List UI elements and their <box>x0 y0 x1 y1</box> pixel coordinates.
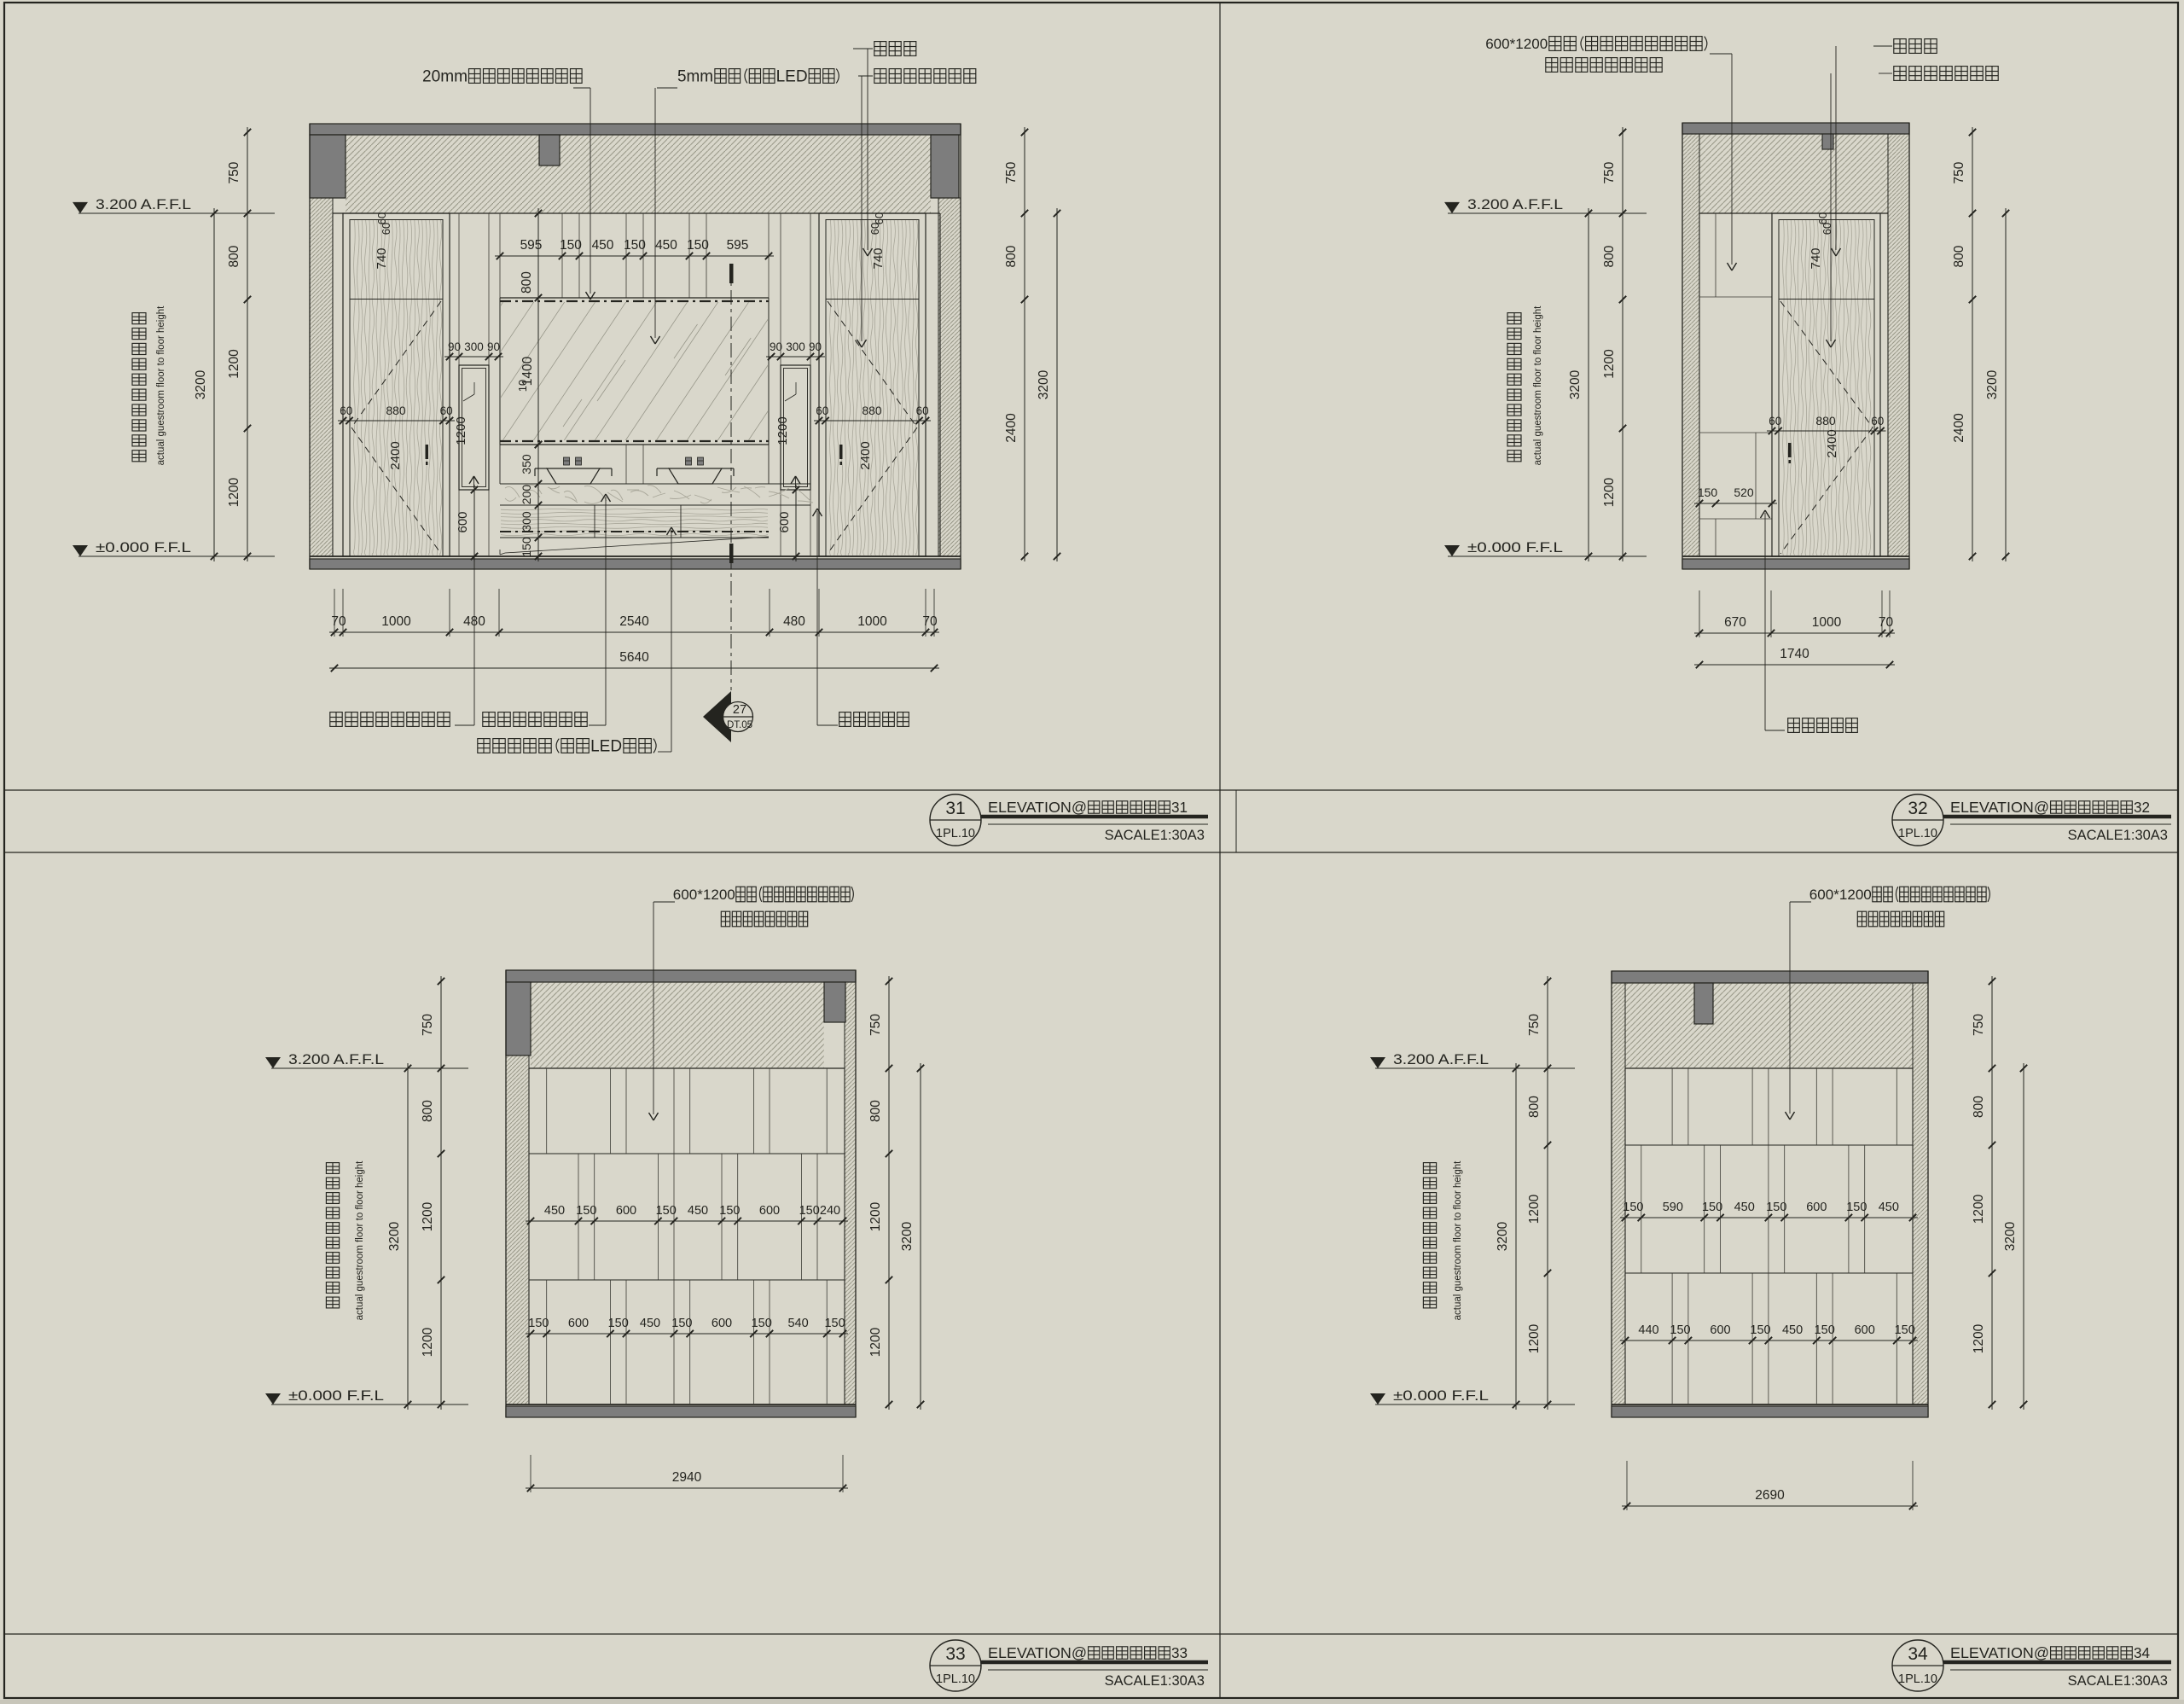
svg-text:3200: 3200 <box>1496 1221 1510 1251</box>
svg-text:600: 600 <box>777 511 792 532</box>
svg-text:60: 60 <box>380 223 392 235</box>
svg-text:±0.000 F.F.L: ±0.000 F.F.L <box>1467 539 1563 555</box>
svg-text:300: 300 <box>520 511 533 532</box>
svg-text:60: 60 <box>816 404 828 417</box>
svg-text:540: 540 <box>787 1317 808 1330</box>
svg-text:150: 150 <box>1766 1201 1786 1214</box>
svg-text:SACALE1:30A3: SACALE1:30A3 <box>2068 828 2168 843</box>
svg-text:150: 150 <box>576 1204 596 1218</box>
svg-text:200: 200 <box>520 485 533 505</box>
svg-text:1PL.10: 1PL.10 <box>1898 827 1937 840</box>
svg-text:3200: 3200 <box>1985 369 2000 399</box>
svg-text:32: 32 <box>1908 799 1927 818</box>
svg-text:600: 600 <box>616 1204 636 1218</box>
svg-text:±0.000 F.F.L: ±0.000 F.F.L <box>1393 1387 1489 1404</box>
svg-text:actual guestroom floor to floo: actual guestroom floor to floor height <box>1453 1160 1463 1320</box>
svg-text:31: 31 <box>945 799 965 818</box>
svg-text:70: 70 <box>922 614 938 629</box>
svg-text:740: 740 <box>1809 247 1823 269</box>
svg-text:800: 800 <box>1952 245 1966 267</box>
svg-text:300: 300 <box>786 340 805 353</box>
svg-text:150: 150 <box>528 1317 549 1330</box>
svg-text:800: 800 <box>520 271 534 294</box>
svg-text:150: 150 <box>656 1204 677 1218</box>
svg-text:600: 600 <box>1710 1323 1730 1337</box>
svg-text:450: 450 <box>688 1204 708 1218</box>
svg-text:150: 150 <box>1846 1201 1867 1214</box>
svg-text:150: 150 <box>1750 1323 1770 1337</box>
svg-text:800: 800 <box>227 245 241 267</box>
svg-text:800: 800 <box>1972 1096 1986 1118</box>
svg-text:600: 600 <box>568 1317 589 1330</box>
svg-text:600: 600 <box>456 511 470 532</box>
svg-text:2400: 2400 <box>1825 429 1839 457</box>
svg-text:70: 70 <box>1879 615 1894 630</box>
svg-text:90: 90 <box>487 340 500 353</box>
svg-text:150: 150 <box>1815 1323 1835 1337</box>
svg-text:1200: 1200 <box>1972 1323 1986 1353</box>
svg-text:150: 150 <box>1895 1323 1915 1337</box>
svg-text:150: 150 <box>1698 486 1718 499</box>
svg-text:33: 33 <box>1171 1644 1188 1661</box>
svg-text:150: 150 <box>1623 1201 1643 1214</box>
svg-text:1200: 1200 <box>421 1201 435 1231</box>
svg-text:440: 440 <box>1638 1323 1658 1337</box>
svg-text:60: 60 <box>868 223 881 235</box>
svg-text:600: 600 <box>759 1204 780 1218</box>
svg-text:3200: 3200 <box>2003 1221 2018 1251</box>
svg-text:1200: 1200 <box>421 1327 435 1357</box>
svg-text:3.200 A.F.F.L: 3.200 A.F.F.L <box>1467 196 1563 212</box>
svg-text:150: 150 <box>1702 1201 1722 1214</box>
svg-text:10: 10 <box>516 380 529 392</box>
svg-text:3200: 3200 <box>1568 369 1583 399</box>
svg-text:1200: 1200 <box>227 477 241 507</box>
svg-text:60: 60 <box>1821 223 1833 235</box>
svg-text:520: 520 <box>1734 486 1754 499</box>
svg-text:5640: 5640 <box>619 650 649 665</box>
svg-text:150: 150 <box>671 1317 692 1330</box>
svg-text:450: 450 <box>592 238 614 253</box>
svg-text:DT.05: DT.05 <box>727 720 752 730</box>
svg-text:LED: LED <box>776 68 808 86</box>
svg-text:3.200 A.F.F.L: 3.200 A.F.F.L <box>1393 1051 1489 1067</box>
svg-text:2400: 2400 <box>858 441 873 469</box>
svg-text:600*1200: 600*1200 <box>1809 887 1872 903</box>
svg-text:1200: 1200 <box>1602 349 1617 379</box>
svg-text:60: 60 <box>1769 415 1781 427</box>
svg-text:90: 90 <box>809 340 822 353</box>
svg-text:2400: 2400 <box>1004 413 1019 443</box>
svg-text:SACALE1:30A3: SACALE1:30A3 <box>1105 1673 1205 1689</box>
svg-text:3200: 3200 <box>1037 369 1051 399</box>
svg-text:600*1200: 600*1200 <box>673 887 735 903</box>
svg-text:actual guestroom floor to floo: actual guestroom floor to floor height <box>156 305 166 465</box>
svg-text:880: 880 <box>1815 414 1836 427</box>
svg-text:60: 60 <box>340 404 352 417</box>
svg-text:27: 27 <box>733 703 746 717</box>
svg-text:ELEVATION@: ELEVATION@ <box>988 1644 1087 1661</box>
svg-text:600*1200: 600*1200 <box>1485 36 1548 52</box>
svg-text:740: 740 <box>871 247 886 269</box>
svg-text:1200: 1200 <box>454 416 468 445</box>
svg-text:800: 800 <box>1602 245 1617 267</box>
svg-text:750: 750 <box>1527 1014 1542 1036</box>
svg-text:800: 800 <box>1527 1096 1542 1118</box>
svg-text:60: 60 <box>1871 415 1884 427</box>
svg-text:150: 150 <box>824 1317 845 1330</box>
svg-text:750: 750 <box>1952 161 1966 183</box>
svg-text:750: 750 <box>1602 161 1617 183</box>
svg-text:5mm: 5mm <box>677 68 713 86</box>
svg-text:450: 450 <box>640 1317 660 1330</box>
svg-text:1PL.10: 1PL.10 <box>1898 1672 1937 1686</box>
svg-text:800: 800 <box>1004 245 1019 267</box>
svg-text:450: 450 <box>1879 1201 1899 1214</box>
svg-text:90: 90 <box>770 340 782 353</box>
svg-text:450: 450 <box>1782 1323 1803 1337</box>
svg-text:90: 90 <box>448 340 461 353</box>
svg-text:800: 800 <box>421 1100 435 1122</box>
svg-text:1200: 1200 <box>1602 477 1617 507</box>
svg-text:880: 880 <box>386 404 406 417</box>
svg-text:750: 750 <box>227 161 241 183</box>
svg-text:2540: 2540 <box>619 614 649 629</box>
svg-text:LED: LED <box>590 738 622 756</box>
svg-text:150: 150 <box>520 537 533 557</box>
svg-text:34: 34 <box>1908 1644 1928 1664</box>
svg-text:actual guestroom floor to floo: actual guestroom floor to floor height <box>1533 305 1543 465</box>
svg-text:800: 800 <box>868 1100 883 1122</box>
svg-text:33: 33 <box>945 1644 965 1664</box>
svg-text:70: 70 <box>331 614 346 629</box>
svg-text:880: 880 <box>862 404 882 417</box>
svg-text:600: 600 <box>1806 1201 1827 1214</box>
svg-text:150: 150 <box>687 238 709 253</box>
svg-text:1200: 1200 <box>1972 1194 1986 1224</box>
svg-text:240: 240 <box>820 1204 840 1218</box>
svg-text:±0.000 F.F.L: ±0.000 F.F.L <box>96 539 191 555</box>
svg-text:actual guestroom floor to floo: actual guestroom floor to floor height <box>355 1160 365 1320</box>
svg-text:3200: 3200 <box>387 1221 402 1251</box>
svg-text:1200: 1200 <box>1527 1323 1542 1353</box>
svg-text:3.200 A.F.F.L: 3.200 A.F.F.L <box>96 196 191 212</box>
svg-text:1200: 1200 <box>868 1327 883 1357</box>
svg-text:34: 34 <box>2134 1644 2150 1661</box>
svg-text:150: 150 <box>608 1317 629 1330</box>
svg-text:150: 150 <box>752 1317 772 1330</box>
svg-text:1200: 1200 <box>227 349 241 379</box>
svg-text:60: 60 <box>440 404 453 417</box>
svg-text:450: 450 <box>544 1204 565 1218</box>
svg-text:1000: 1000 <box>1812 615 1842 630</box>
svg-text:1200: 1200 <box>1527 1194 1542 1224</box>
svg-text:2400: 2400 <box>1952 413 1966 443</box>
svg-text:±0.000 F.F.L: ±0.000 F.F.L <box>288 1387 384 1404</box>
svg-text:20mm: 20mm <box>422 68 468 86</box>
svg-text:670: 670 <box>1724 615 1746 630</box>
svg-text:150: 150 <box>719 1204 740 1218</box>
svg-text:60: 60 <box>916 404 929 417</box>
svg-text:3200: 3200 <box>194 369 208 399</box>
svg-text:1200: 1200 <box>868 1201 883 1231</box>
svg-text:1000: 1000 <box>381 614 411 629</box>
svg-text:1PL.10: 1PL.10 <box>936 1672 975 1686</box>
svg-text:2940: 2940 <box>672 1470 702 1485</box>
svg-text:2400: 2400 <box>388 441 403 469</box>
svg-text:1200: 1200 <box>775 416 790 445</box>
svg-text:450: 450 <box>655 238 677 253</box>
svg-text:1000: 1000 <box>857 614 887 629</box>
svg-text:750: 750 <box>868 1014 883 1036</box>
svg-text:1740: 1740 <box>1780 647 1809 661</box>
svg-text:150: 150 <box>799 1204 820 1218</box>
svg-text:150: 150 <box>1670 1323 1690 1337</box>
svg-text:SACALE1:30A3: SACALE1:30A3 <box>1105 828 1205 843</box>
svg-text:31: 31 <box>1171 799 1188 816</box>
svg-text:750: 750 <box>421 1014 435 1036</box>
svg-text:3.200 A.F.F.L: 3.200 A.F.F.L <box>288 1051 384 1067</box>
svg-text:600: 600 <box>1855 1323 1875 1337</box>
svg-text:150: 150 <box>624 238 646 253</box>
svg-text:300: 300 <box>464 340 484 353</box>
svg-text:150: 150 <box>560 238 582 253</box>
svg-text:750: 750 <box>1972 1014 1986 1036</box>
svg-text:750: 750 <box>1004 161 1019 183</box>
svg-text:600: 600 <box>712 1317 732 1330</box>
svg-text:480: 480 <box>783 614 805 629</box>
svg-text:3200: 3200 <box>900 1221 915 1251</box>
svg-text:1PL.10: 1PL.10 <box>936 827 975 840</box>
svg-text:450: 450 <box>1734 1201 1755 1214</box>
svg-text:SACALE1:30A3: SACALE1:30A3 <box>2068 1673 2168 1689</box>
svg-text:350: 350 <box>520 454 533 474</box>
svg-text:ELEVATION@: ELEVATION@ <box>1950 799 2049 816</box>
svg-text:32: 32 <box>2134 799 2150 816</box>
svg-text:595: 595 <box>727 238 749 253</box>
svg-text:740: 740 <box>375 247 389 269</box>
svg-text:595: 595 <box>520 238 543 253</box>
svg-text:ELEVATION@: ELEVATION@ <box>988 799 1087 816</box>
svg-text:2690: 2690 <box>1755 1488 1785 1503</box>
svg-text:ELEVATION@: ELEVATION@ <box>1950 1644 2049 1661</box>
svg-text:590: 590 <box>1663 1201 1683 1214</box>
